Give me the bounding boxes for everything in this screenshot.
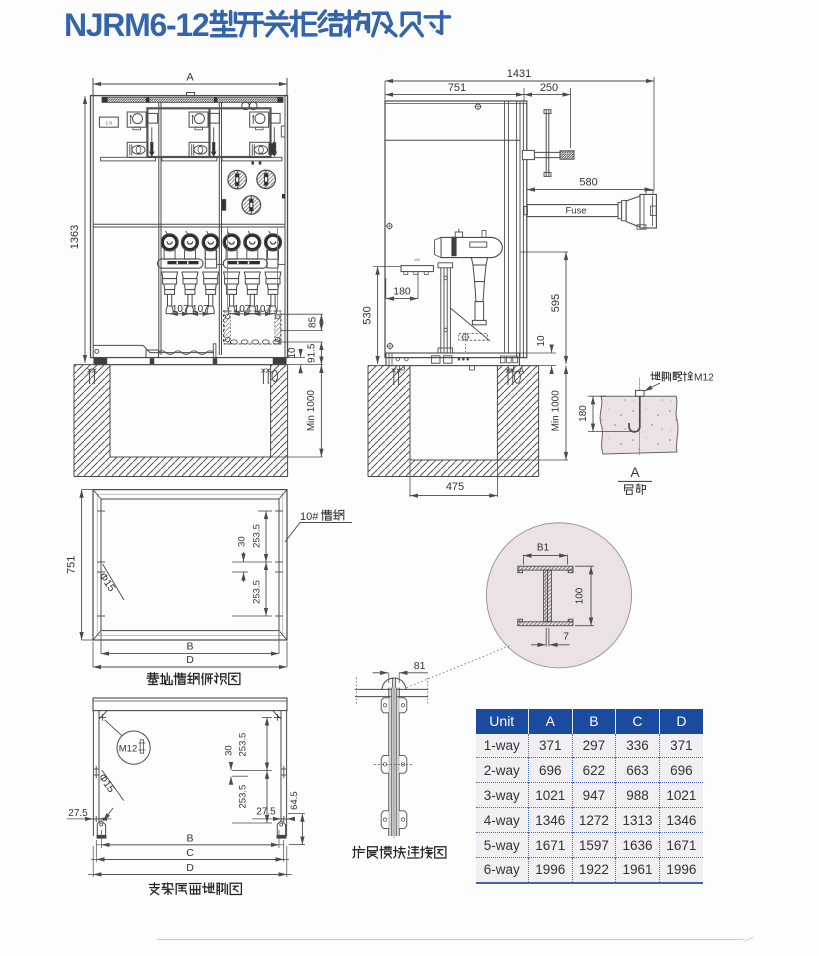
svg-text:475: 475	[446, 481, 464, 493]
svg-text:Min 1000: Min 1000	[550, 390, 561, 432]
svg-text:30: 30	[224, 745, 235, 756]
svg-text:107: 107	[172, 304, 189, 315]
svg-text:Φ15: Φ15	[96, 571, 117, 594]
svg-text:D: D	[186, 862, 194, 874]
svg-text:A: A	[630, 465, 639, 480]
svg-text:64.5: 64.5	[289, 791, 300, 810]
svg-text:253.5: 253.5	[251, 524, 262, 548]
svg-text:M12: M12	[694, 372, 714, 383]
svg-text:10: 10	[536, 335, 547, 347]
svg-text:NJRM6-12: NJRM6-12	[64, 7, 209, 43]
svg-text:1 8: 1 8	[106, 120, 113, 125]
svg-text:253.5: 253.5	[238, 785, 249, 809]
svg-text:27.5: 27.5	[256, 807, 276, 818]
svg-text:B1: B1	[537, 543, 550, 554]
svg-text:180: 180	[393, 285, 411, 297]
svg-text:Fuse: Fuse	[565, 206, 586, 217]
svg-text:595: 595	[550, 294, 562, 312]
svg-text:250: 250	[540, 82, 558, 94]
svg-text:81: 81	[414, 660, 426, 672]
svg-text:7: 7	[563, 631, 569, 643]
svg-text:1431: 1431	[507, 68, 531, 80]
svg-text:253.5: 253.5	[251, 580, 262, 604]
svg-text:B: B	[186, 832, 193, 844]
svg-text:580: 580	[579, 176, 597, 188]
svg-text:D: D	[186, 654, 194, 666]
svg-text:M12: M12	[119, 744, 137, 755]
svg-text:107: 107	[254, 304, 271, 315]
svg-text:B: B	[186, 641, 193, 653]
svg-text:107: 107	[234, 304, 251, 315]
svg-text:10#: 10#	[300, 511, 319, 523]
svg-text:107: 107	[192, 304, 209, 315]
svg-text:180: 180	[414, 258, 420, 262]
svg-text:Min 1000: Min 1000	[306, 390, 317, 432]
svg-text:180: 180	[578, 405, 589, 422]
svg-text:1363: 1363	[69, 225, 81, 249]
svg-text:85: 85	[307, 316, 318, 328]
svg-text:530: 530	[361, 306, 373, 324]
svg-text:10: 10	[287, 347, 298, 359]
svg-text:30: 30	[237, 536, 248, 547]
svg-text:91.5: 91.5	[306, 343, 317, 363]
svg-text:27.5: 27.5	[68, 808, 88, 819]
svg-text:751: 751	[448, 82, 466, 94]
svg-text:751: 751	[66, 556, 78, 574]
svg-text:A: A	[186, 72, 194, 84]
svg-text:253.5: 253.5	[238, 733, 249, 757]
svg-text:100: 100	[575, 587, 586, 604]
svg-text:C: C	[186, 847, 194, 859]
svg-text:A: A	[519, 366, 525, 376]
